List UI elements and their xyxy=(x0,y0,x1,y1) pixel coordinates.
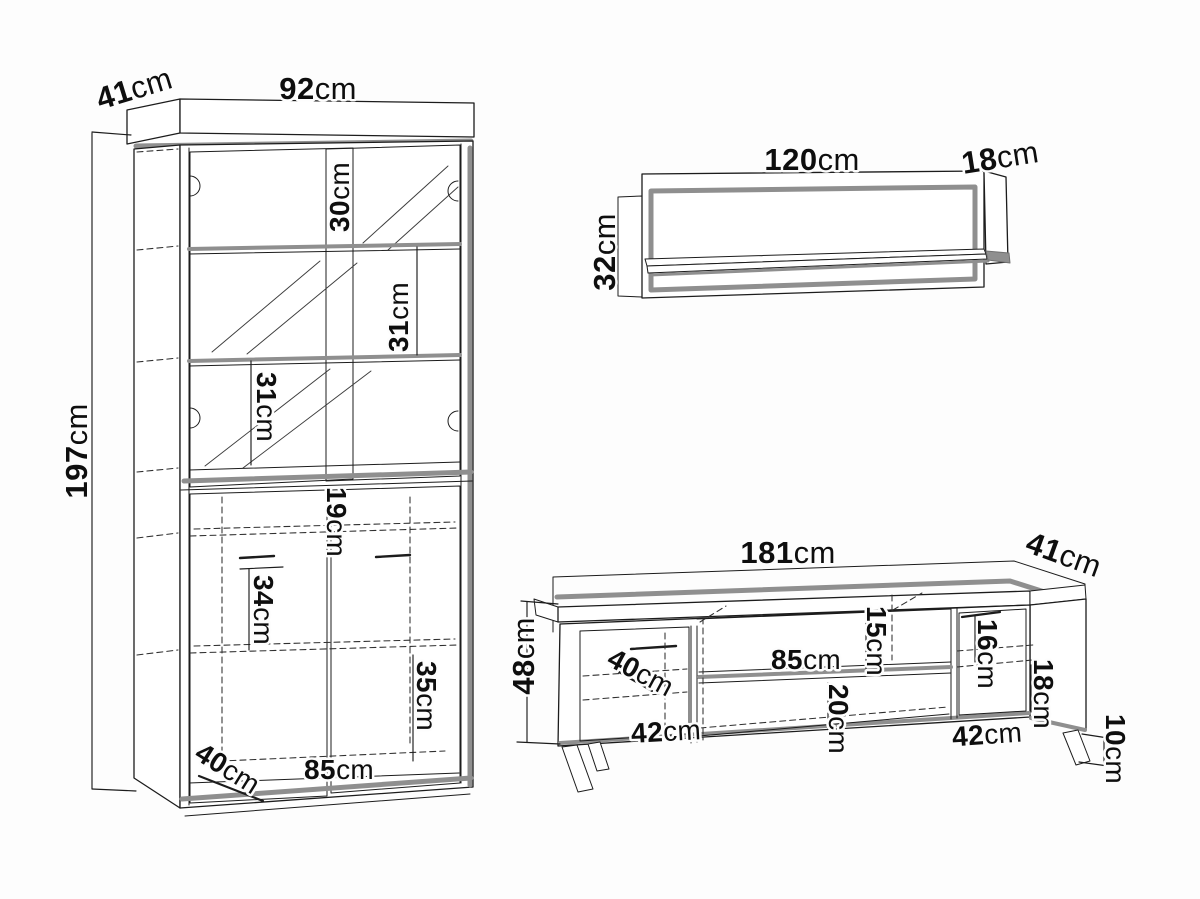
cabinet-bottom-section-label: 35cm xyxy=(412,661,443,731)
technical-drawing-canvas: 41cm 92cm 197cm 30cm 31cm 31cm 19cm 34cm… xyxy=(0,0,1200,899)
tv-stand-left-door-width-label: 42cm xyxy=(630,714,702,749)
furniture-dimensions-diagram: 41cm 92cm 197cm 30cm 31cm 31cm 19cm 34cm… xyxy=(0,0,1200,899)
tv-stand-leg-height-label: 10cm xyxy=(1101,714,1132,784)
cabinet-middle-section-label: 31cm xyxy=(252,372,283,442)
tv-stand-height-label: 48cm xyxy=(506,617,541,694)
cabinet-top-section-label: 30cm xyxy=(324,162,355,232)
wall-shelf-width-label: 120cm xyxy=(764,142,859,177)
cabinet-lower-section-label: 34cm xyxy=(249,575,280,645)
tv-stand-leg xyxy=(562,745,593,792)
wall-shelf-right-panel xyxy=(984,171,1008,264)
wall-shelf-left-end xyxy=(618,196,642,297)
tv-stand-lower-opening-height-label: 20cm xyxy=(824,684,855,754)
tv-stand-width-label: 181cm xyxy=(740,535,835,570)
tv-stand-right-door-width-label: 42cm xyxy=(951,716,1023,752)
cabinet-shelf-gap-label: 19cm xyxy=(322,487,353,557)
cabinet-height-label: 197cm xyxy=(59,403,94,498)
cabinet-side-panel xyxy=(134,145,180,808)
wall-shelf-height-label: 32cm xyxy=(587,213,622,290)
tv-stand-shelf-width-label: 85cm xyxy=(771,644,841,675)
wall-shelf-depth-label: 18cm xyxy=(959,134,1041,181)
tv-stand-leg xyxy=(1063,730,1090,765)
tv-stand-right-upper-height-label: 16cm xyxy=(973,619,1004,689)
tv-stand-drawing xyxy=(517,561,1108,792)
tv-stand-right-lower-height-label: 18cm xyxy=(1029,659,1060,729)
tv-stand-depth-label: 41cm xyxy=(1022,524,1107,583)
tv-stand-leg xyxy=(588,742,609,771)
cabinet-upper-section-label: 31cm xyxy=(383,282,414,352)
cabinet-width-label: 92cm xyxy=(279,71,356,106)
tv-stand-upper-shelf-height-label: 15cm xyxy=(862,606,893,676)
cabinet-interior-width-label: 85cm xyxy=(304,754,374,785)
wall-shelf-drawing xyxy=(618,171,1010,298)
